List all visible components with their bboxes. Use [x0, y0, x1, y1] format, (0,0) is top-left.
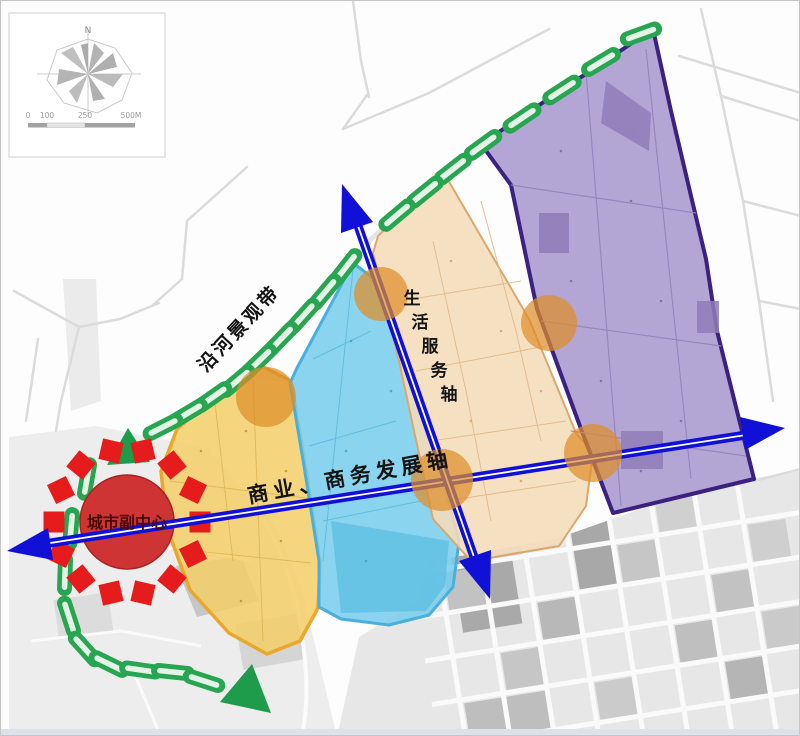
svg-text:服: 服 [422, 337, 440, 357]
legend-panel: N 0 100 250 500M [9, 13, 165, 157]
compass-north-label: N [85, 26, 92, 36]
svg-text:轴: 轴 [441, 384, 458, 405]
development-node [521, 295, 577, 351]
scale-bar: 0 100 250 500M [26, 111, 142, 128]
development-node [564, 424, 622, 482]
map-bottom-edge [1, 729, 800, 736]
scale-tick-0: 0 [26, 111, 31, 120]
scale-tick-500: 500M [121, 111, 142, 120]
svg-text:务: 务 [431, 360, 449, 381]
sub-center-label: 城市副中心 [87, 513, 167, 532]
planning-map-canvas: N 0 100 250 500M 沿河景观带 生 活 服 务 轴 商业、商务发展… [1, 1, 800, 736]
scale-tick-250: 250 [78, 111, 93, 120]
development-node [354, 267, 408, 321]
planning-map: N 0 100 250 500M 沿河景观带 生 活 服 务 轴 商业、商务发展… [0, 0, 800, 736]
development-node [236, 367, 296, 427]
svg-text:活: 活 [412, 312, 429, 333]
svg-text:生: 生 [404, 288, 421, 309]
scale-tick-100: 100 [40, 111, 55, 120]
